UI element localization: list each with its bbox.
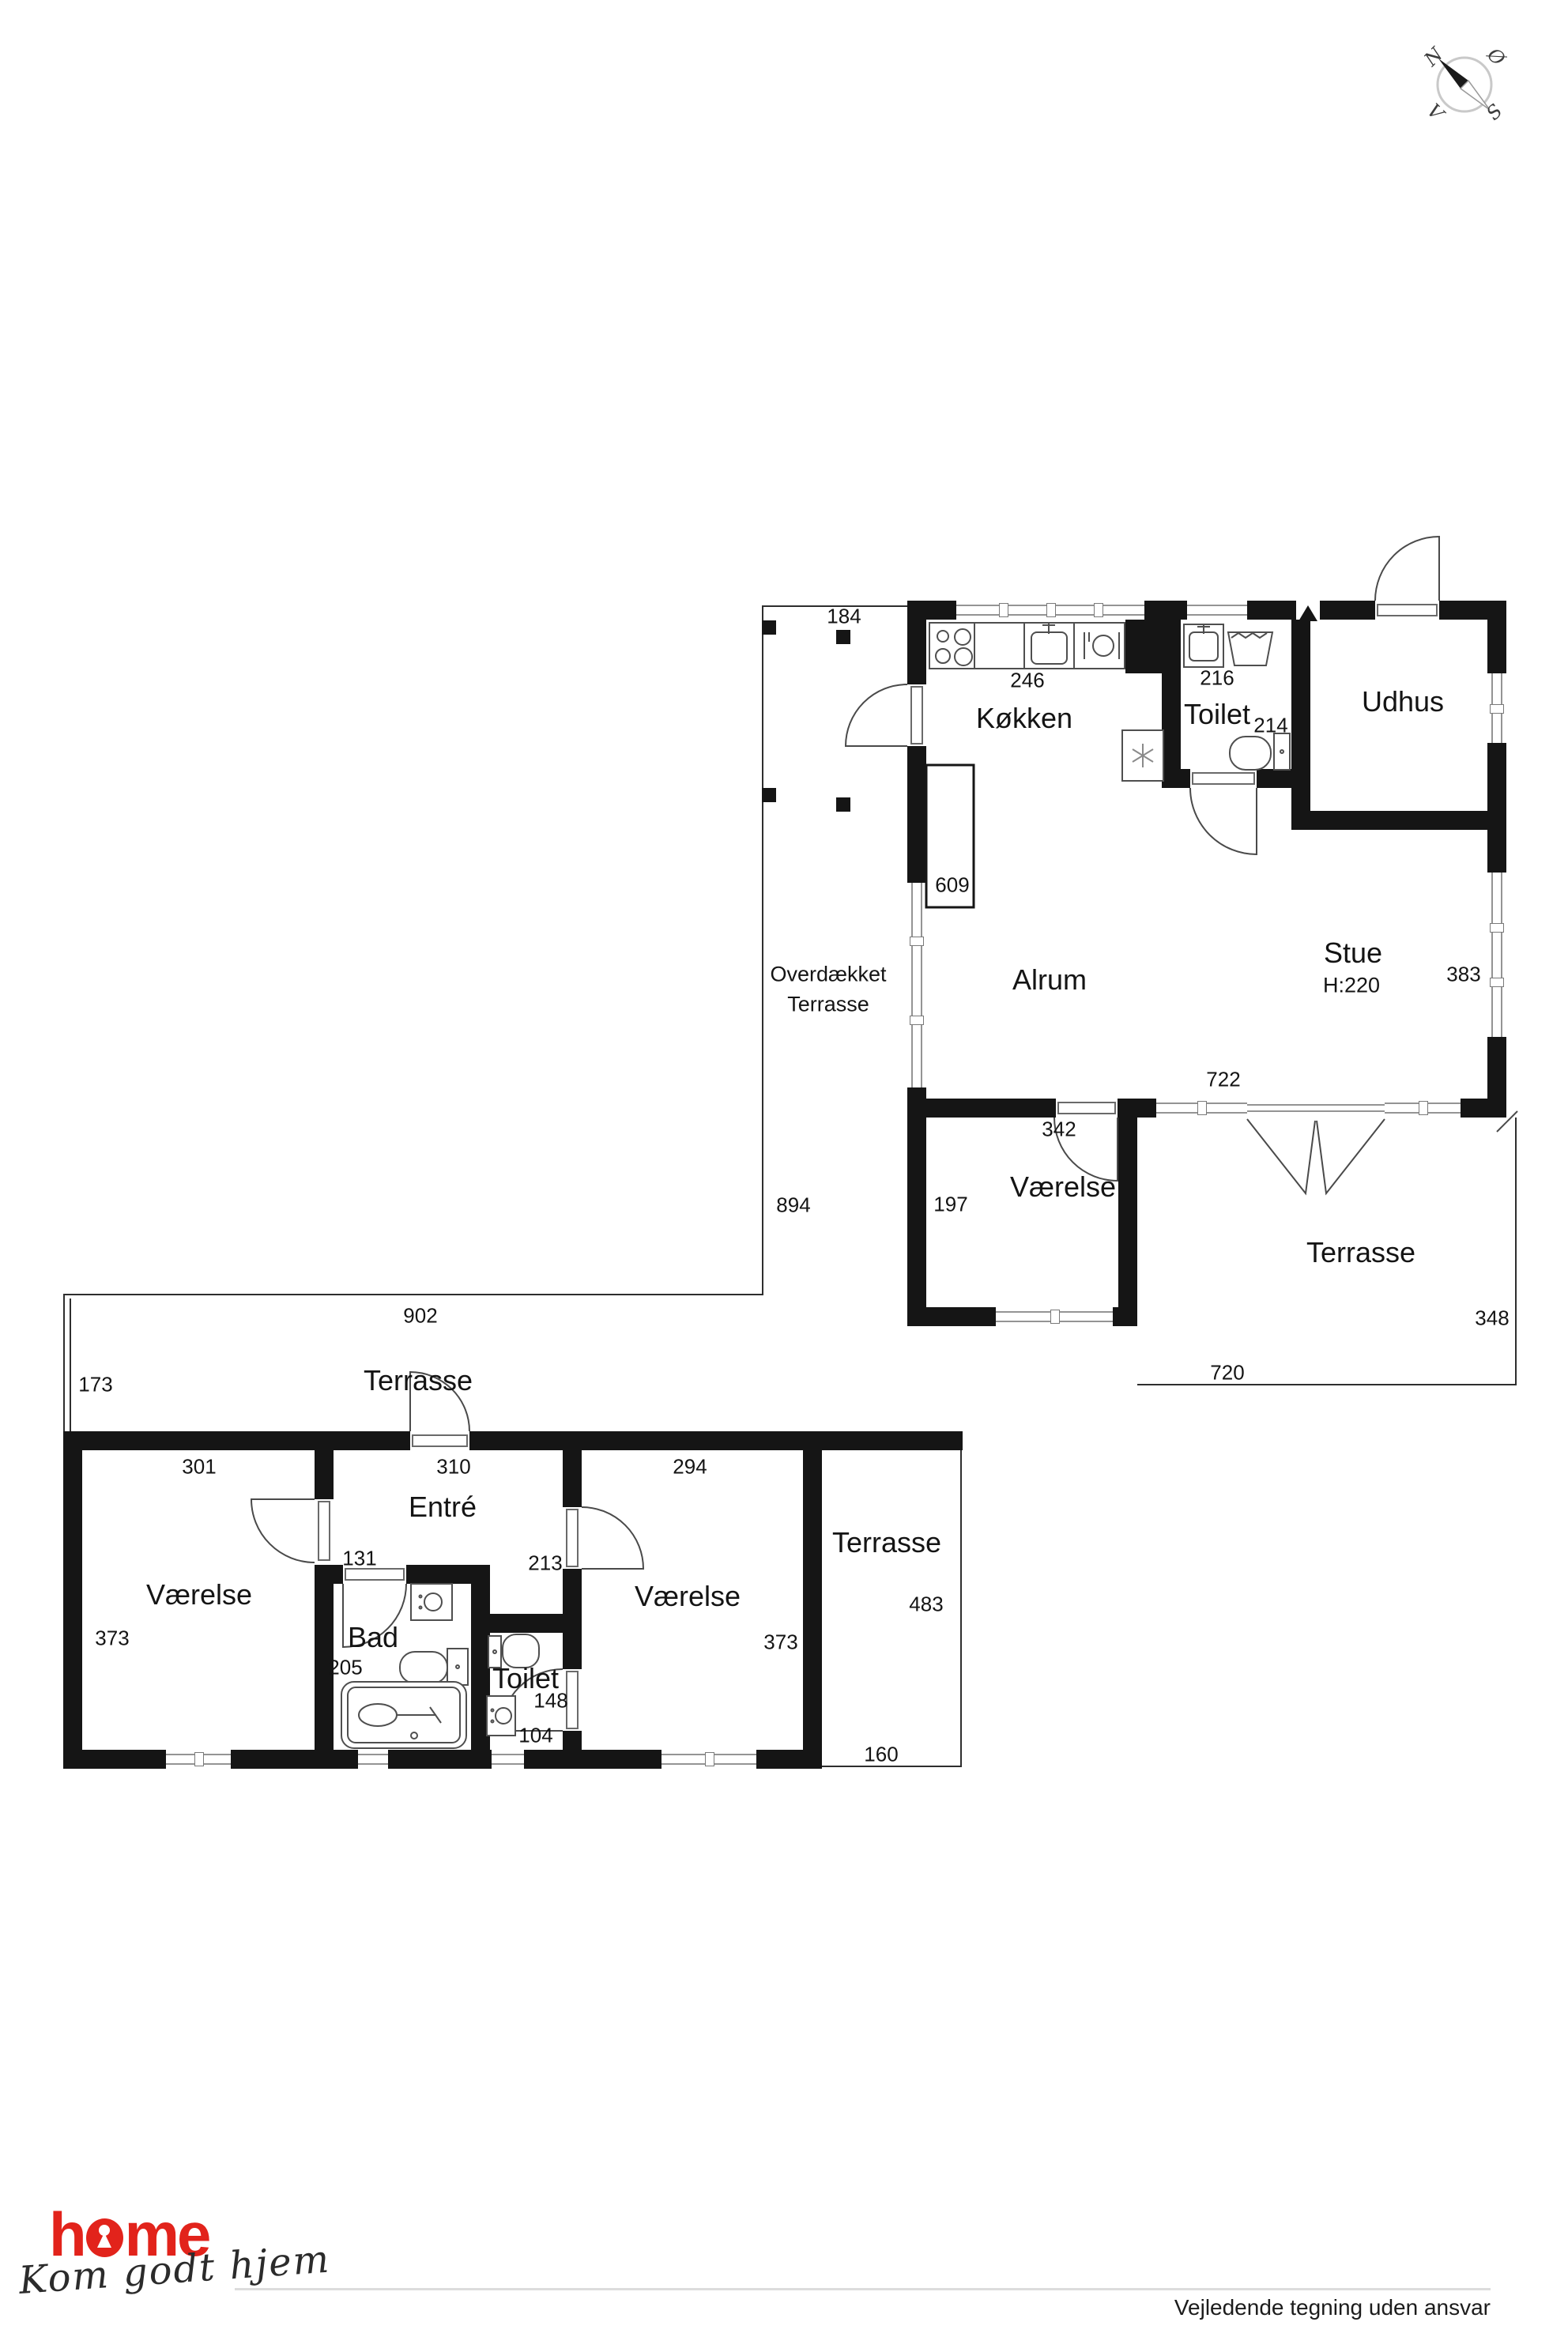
dim-label: 213 bbox=[528, 1551, 562, 1576]
room-label-covered-terrace: Terrasse bbox=[787, 993, 869, 1017]
dim-label: 104 bbox=[518, 1724, 552, 1748]
dim-label: 214 bbox=[1253, 714, 1287, 738]
room-label-bath: Bad bbox=[348, 1621, 398, 1654]
room-label-alrum: Alrum bbox=[1012, 963, 1087, 997]
room-label-shed: Udhus bbox=[1362, 685, 1444, 718]
laundry-basin-icon bbox=[1231, 633, 1267, 638]
door-arc bbox=[1190, 788, 1257, 854]
wc-button bbox=[456, 1665, 459, 1668]
wc-bowl bbox=[400, 1652, 447, 1683]
dim-label: 902 bbox=[403, 1304, 437, 1329]
french-door-leaf bbox=[1247, 1119, 1315, 1193]
dim-label: 246 bbox=[1010, 669, 1044, 693]
dim-label: 294 bbox=[673, 1455, 707, 1479]
dishwasher-icon bbox=[1074, 623, 1125, 669]
dim-label: 184 bbox=[827, 605, 861, 629]
dim-label: 373 bbox=[763, 1630, 797, 1655]
dim-label: 373 bbox=[95, 1626, 129, 1651]
dim-label: 348 bbox=[1475, 1306, 1509, 1331]
room-label-terrace: Terrasse bbox=[832, 1526, 941, 1559]
dim-label: 131 bbox=[342, 1547, 376, 1571]
bath-sink-icon bbox=[411, 1584, 452, 1620]
footer-divider bbox=[235, 2288, 1491, 2290]
ceiling-height-label: H:220 bbox=[1323, 974, 1380, 998]
dim-label: 720 bbox=[1210, 1361, 1244, 1385]
room-label-covered-terrace: Overdækket bbox=[770, 963, 886, 987]
door-arc bbox=[251, 1499, 315, 1562]
compass-label-e: Ø bbox=[1482, 43, 1510, 70]
room-label-entry: Entré bbox=[409, 1491, 477, 1524]
dim-label: 197 bbox=[933, 1193, 967, 1217]
dim-label: 301 bbox=[182, 1455, 216, 1479]
dim-label: 148 bbox=[533, 1689, 567, 1713]
disclaimer-text: Vejledende tegning uden ansvar bbox=[1174, 2295, 1491, 2320]
tap-dot bbox=[492, 1721, 494, 1723]
entrance-marker-icon bbox=[1298, 605, 1317, 621]
dim-label: 173 bbox=[78, 1373, 112, 1397]
corner-tick bbox=[1497, 1111, 1517, 1132]
door-arc bbox=[1375, 537, 1439, 601]
counter bbox=[974, 623, 1024, 669]
wc-button bbox=[1280, 750, 1283, 753]
room-label-kitchen: Køkken bbox=[976, 702, 1072, 735]
dim-label: 894 bbox=[776, 1193, 810, 1218]
dim-label: 160 bbox=[864, 1743, 898, 1767]
dim-label: 722 bbox=[1206, 1068, 1240, 1092]
plan-symbols-layer: N Ø S V bbox=[0, 0, 1568, 2352]
dim-label: 483 bbox=[909, 1592, 943, 1617]
laundry-basin-icon bbox=[1228, 632, 1272, 665]
room-label-toilet: Toilet bbox=[1184, 698, 1250, 731]
stove-icon bbox=[929, 623, 974, 669]
wc-button bbox=[493, 1650, 496, 1653]
door-arc bbox=[846, 684, 907, 746]
room-label-terrace: Terrasse bbox=[364, 1364, 473, 1397]
wc-bowl bbox=[1230, 737, 1271, 770]
french-door-leaf bbox=[1317, 1119, 1385, 1193]
floor-plan-canvas: N Ø S V 184 246 Køkken 216 Toilet 214 Ud… bbox=[0, 0, 1568, 2352]
tap-dot bbox=[420, 1596, 422, 1598]
dim-label: 310 bbox=[436, 1455, 470, 1479]
compass-icon: N Ø S V bbox=[1419, 43, 1510, 126]
toilet-fixtures bbox=[1184, 624, 1290, 770]
room-label-terrace: Terrasse bbox=[1306, 1236, 1415, 1269]
dim-label: 216 bbox=[1200, 666, 1234, 691]
tap-dot bbox=[492, 1709, 494, 1712]
room-label-bedroom: Værelse bbox=[146, 1578, 252, 1611]
room-label-living: Stue bbox=[1324, 937, 1382, 970]
dim-label: 383 bbox=[1446, 963, 1480, 987]
tap-dot bbox=[420, 1607, 422, 1609]
dim-label: 609 bbox=[935, 873, 969, 898]
door-arc bbox=[582, 1507, 643, 1569]
dim-label: 205 bbox=[328, 1656, 362, 1680]
room-label-bedroom: Værelse bbox=[635, 1580, 741, 1613]
room-label-bedroom: Værelse bbox=[1010, 1170, 1116, 1204]
dim-label: 342 bbox=[1042, 1118, 1076, 1142]
